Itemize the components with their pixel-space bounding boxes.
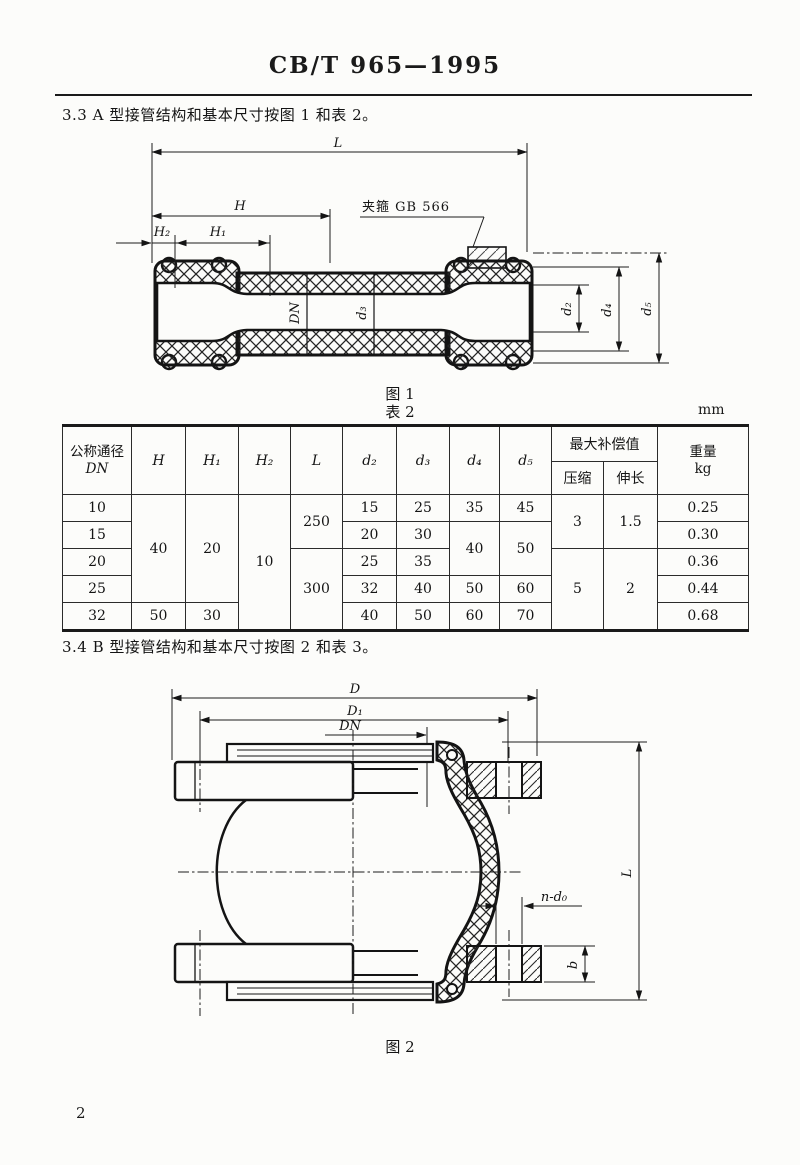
fig1-dim-d4: d₄	[533, 267, 629, 351]
th-dn-symbol: DN	[63, 461, 131, 478]
th-l: L	[291, 426, 343, 495]
table-cell: 5	[552, 549, 604, 631]
document-page: CB/T 965—1995 3.3 A 型接管结构和基本尺寸按图 1 和表 2。	[0, 0, 800, 1165]
table-cell: 35	[397, 549, 450, 576]
fig1-label-dn: DN	[288, 301, 303, 324]
table-cell: 40	[450, 522, 500, 576]
th-dn-label: 公称通径	[63, 444, 131, 461]
table-cell: 40	[132, 495, 186, 603]
th-weight-label: 重量	[658, 444, 748, 461]
fig1-label-d4: d₄	[600, 303, 615, 317]
table-cell: 20	[343, 522, 397, 549]
fig1-label-H1: H₁	[209, 225, 227, 240]
fig1-label-d5: d₅	[640, 301, 655, 315]
table-cell: 300	[291, 549, 343, 631]
figure1-drawing: DN d₃ L H H₂ H₁ 夹箍 GB 566	[100, 130, 760, 382]
joint-body	[155, 258, 532, 369]
th-d3: d₃	[397, 426, 450, 495]
fig1-label-H2: H₂	[153, 225, 171, 240]
th-h1: H₁	[186, 426, 239, 495]
th-compress: 压缩	[552, 462, 604, 495]
table-cell: 40	[397, 576, 450, 603]
standard-code-title: CB/T 965—1995	[0, 52, 770, 79]
th-weight: 重量 kg	[658, 426, 749, 495]
fig2-label-DN: DN	[338, 719, 361, 734]
figure2-caption: 图 2	[0, 1036, 800, 1057]
table-cell: 32	[343, 576, 397, 603]
fig2-dim-b: b	[544, 946, 595, 982]
fig1-label-d3: d₃	[355, 306, 370, 320]
th-d2: d₂	[343, 426, 397, 495]
fig2-label-b: b	[566, 961, 581, 969]
table-2: 公称通径 DN H H₁ H₂ L d₂ d₃ d₄ d₅ 最大补偿值 重量 k…	[62, 424, 749, 632]
fig2-label-nd0: n-d₀	[541, 890, 568, 905]
th-d4: d₄	[450, 426, 500, 495]
table-cell: 15	[343, 495, 397, 522]
table-cell: 15	[63, 522, 132, 549]
th-dn: 公称通径 DN	[63, 426, 132, 495]
th-weight-unit: kg	[658, 461, 748, 478]
table-cell: 25	[343, 549, 397, 576]
table-cell: 50	[450, 576, 500, 603]
table-cell: 40	[343, 603, 397, 631]
table-cell: 32	[63, 603, 132, 631]
table-cell: 60	[500, 576, 552, 603]
table-cell: 0.68	[658, 603, 749, 631]
table-cell: 60	[450, 603, 500, 631]
table2-unit: mm	[698, 402, 725, 418]
section-3-4-text: 3.4 B 型接管结构和基本尺寸按图 2 和表 3。	[62, 636, 378, 657]
fig1-dim-d2: d₂	[533, 285, 589, 332]
th-extend: 伸长	[604, 462, 658, 495]
table-cell: 0.30	[658, 522, 749, 549]
fig1-label-H: H	[233, 199, 246, 214]
table-cell: 30	[397, 522, 450, 549]
fig1-dim-L: L	[152, 136, 527, 263]
table-cell: 1.5	[604, 495, 658, 549]
table-cell: 10	[63, 495, 132, 522]
figure2-drawing: D D₁ DN	[150, 672, 670, 1022]
table-cell: 2	[604, 549, 658, 631]
th-h2: H₂	[239, 426, 291, 495]
table-cell: 45	[500, 495, 552, 522]
table-cell: 0.36	[658, 549, 749, 576]
section-3-3-text: 3.3 A 型接管结构和基本尺寸按图 1 和表 2。	[62, 104, 378, 125]
table-row: 10 40 20 10 250 15 25 35 45 3 1.5 0.25	[63, 495, 749, 522]
table-cell: 0.25	[658, 495, 749, 522]
fig1-dim-H: H	[152, 199, 330, 263]
fig1-label-d2: d₂	[560, 302, 575, 316]
table-cell: 10	[239, 495, 291, 631]
th-d5: d₅	[500, 426, 552, 495]
table-cell: 30	[186, 603, 239, 631]
table-cell: 70	[500, 603, 552, 631]
table-cell: 50	[500, 522, 552, 576]
header-rule	[55, 94, 752, 96]
fig1-label-clamp: 夹箍 GB 566	[362, 199, 450, 215]
th-compensation: 最大补偿值	[552, 426, 658, 462]
table-cell: 20	[186, 495, 239, 603]
table-cell: 20	[63, 549, 132, 576]
fig1-clamp-callout: 夹箍 GB 566	[360, 199, 484, 247]
table-cell: 3	[552, 495, 604, 549]
table-cell: 50	[132, 603, 186, 631]
th-h: H	[132, 426, 186, 495]
page-number: 2	[76, 1104, 86, 1122]
table-cell: 25	[397, 495, 450, 522]
table-cell: 50	[397, 603, 450, 631]
table2-caption: 表 2	[0, 401, 800, 422]
table-cell: 250	[291, 495, 343, 549]
table-cell: 25	[63, 576, 132, 603]
fig1-label-L: L	[333, 136, 343, 151]
table-cell: 0.44	[658, 576, 749, 603]
fig2-label-D1: D₁	[346, 704, 363, 719]
fig2-label-L: L	[620, 869, 635, 879]
table-cell: 35	[450, 495, 500, 522]
fig2-label-D: D	[349, 682, 361, 697]
